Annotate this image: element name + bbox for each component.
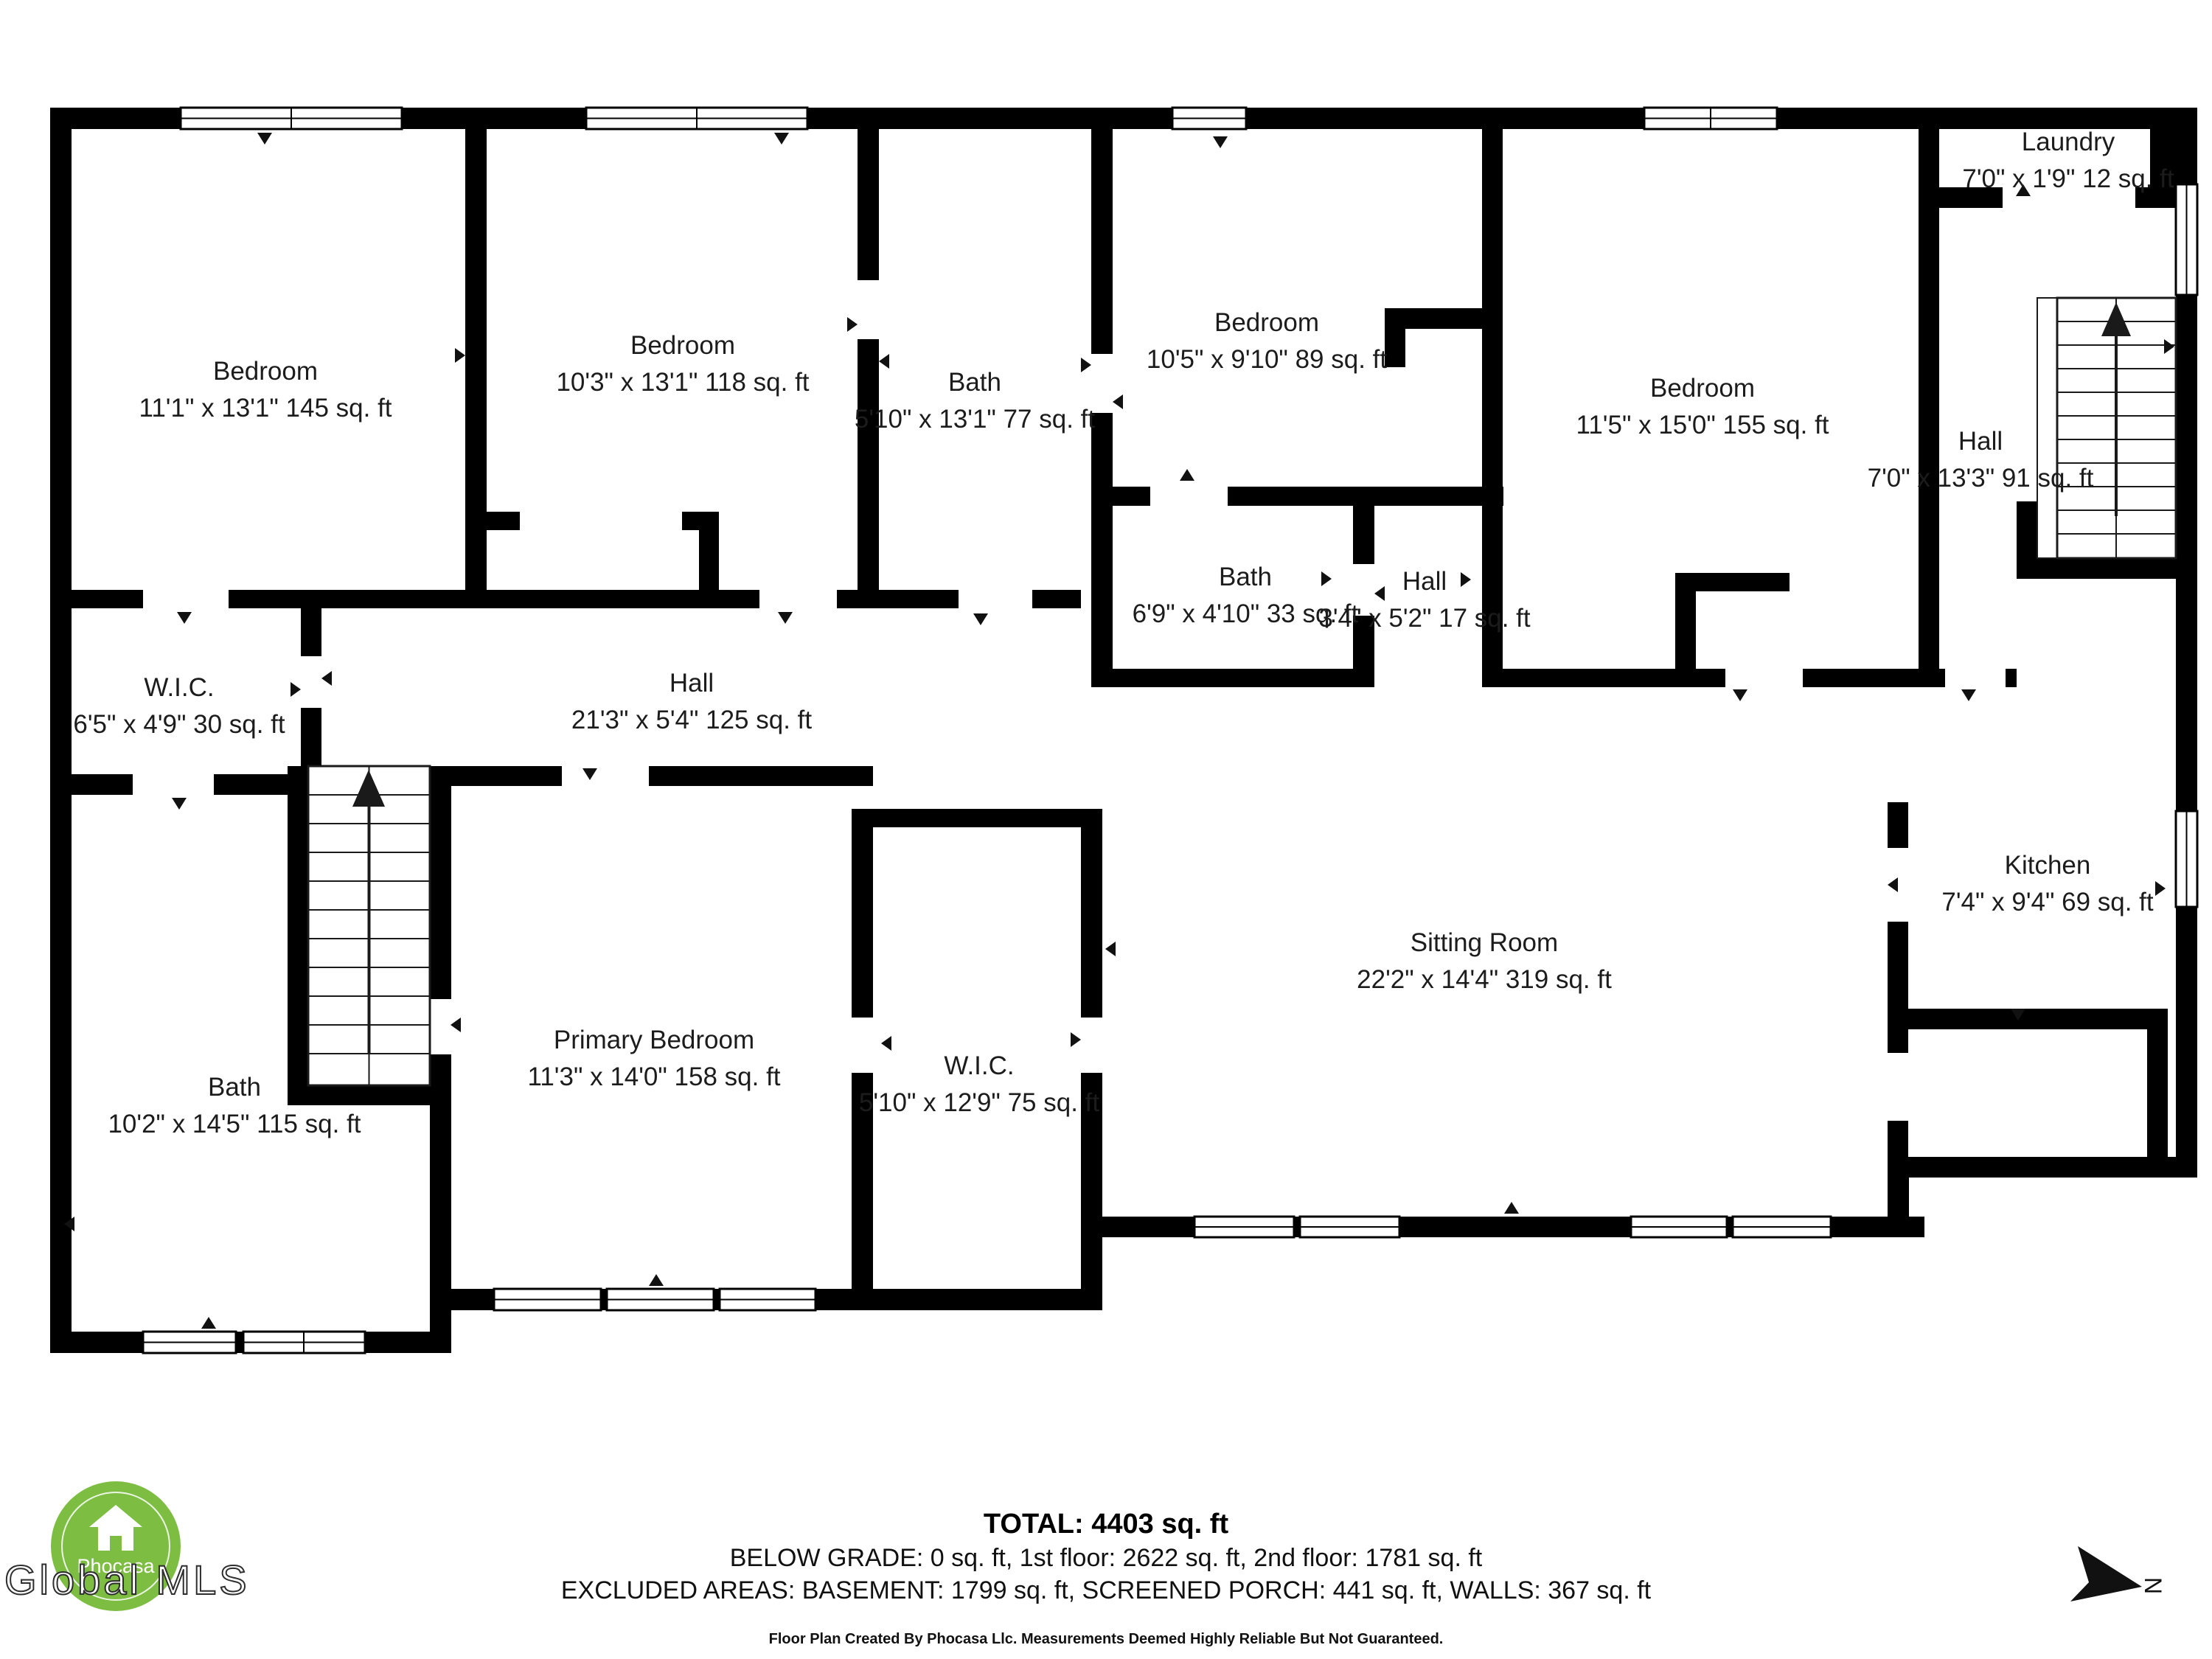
room-dims: 21'3" x 5'4" 125 sq. ft xyxy=(571,702,812,739)
room-dims: 6'5" x 4'9" 30 sq. ft xyxy=(73,706,285,743)
room-name: W.I.C. xyxy=(859,1048,1099,1085)
room-label-sitting-room: Sitting Room 22'2" x 14'4" 319 sq. ft xyxy=(1357,925,1612,998)
room-dims: 5'10" x 13'1" 77 sq. ft xyxy=(855,401,1095,438)
room-label-bath-lower: Bath 10'2" x 14'5" 115 sq. ft xyxy=(108,1069,361,1143)
disclaimer-text: Floor Plan Created By Phocasa Llc. Measu… xyxy=(0,1631,2212,1648)
room-name: W.I.C. xyxy=(73,669,285,706)
room-name: Bedroom xyxy=(139,353,392,390)
floor-areas-text: BELOW GRADE: 0 sq. ft, 1st floor: 2622 s… xyxy=(0,1544,2212,1573)
excluded-areas-text: EXCLUDED AREAS: BASEMENT: 1799 sq. ft, S… xyxy=(0,1576,2212,1605)
room-label-wic-2: W.I.C. 5'10" x 12'9" 75 sq. ft xyxy=(859,1048,1099,1121)
room-name: Bath xyxy=(108,1069,361,1106)
room-dims: 11'5" x 15'0" 155 sq. ft xyxy=(1576,407,1829,444)
room-name: Bath xyxy=(855,364,1095,401)
room-dims: 7'0" x 13'3" 91 sq. ft xyxy=(1868,460,2094,497)
room-dims: 7'0" x 1'9" 12 sq. ft xyxy=(1962,161,2174,198)
room-dims: 10'5" x 9'10" 89 sq. ft xyxy=(1147,341,1387,378)
room-dims: 7'4" x 9'4" 69 sq. ft xyxy=(1941,884,2153,921)
room-label-hall-center: Hall 21'3" x 5'4" 125 sq. ft xyxy=(571,665,812,739)
room-dims: 11'3" x 14'0" 158 sq. ft xyxy=(527,1059,780,1096)
room-dims: 10'2" x 14'5" 115 sq. ft xyxy=(108,1106,361,1143)
room-label-hall-small: Hall 3'4" x 5'2" 17 sq. ft xyxy=(1318,563,1530,637)
walls-layer xyxy=(50,108,2197,1353)
floor-plan-page: Bedroom 11'1" x 13'1" 145 sq. ft Bedroom… xyxy=(0,0,2212,1659)
room-name: Hall xyxy=(571,665,812,702)
stairs-left xyxy=(308,766,430,1085)
room-name: Hall xyxy=(1318,563,1530,600)
room-name: Bedroom xyxy=(556,327,809,364)
room-name: Bedroom xyxy=(1147,305,1387,341)
room-dims: 11'1" x 13'1" 145 sq. ft xyxy=(139,390,392,427)
room-dims: 5'10" x 12'9" 75 sq. ft xyxy=(859,1085,1099,1121)
room-name: Sitting Room xyxy=(1357,925,1612,961)
room-label-bath-top: Bath 5'10" x 13'1" 77 sq. ft xyxy=(855,364,1095,438)
room-label-bedroom-2: Bedroom 10'3" x 13'1" 118 sq. ft xyxy=(556,327,809,401)
floor-plan-drawing xyxy=(0,0,2212,1659)
room-name: Laundry xyxy=(1962,124,2174,161)
room-label-wic-1: W.I.C. 6'5" x 4'9" 30 sq. ft xyxy=(73,669,285,743)
room-dims: 22'2" x 14'4" 319 sq. ft xyxy=(1357,961,1612,998)
room-label-bedroom-1: Bedroom 11'1" x 13'1" 145 sq. ft xyxy=(139,353,392,427)
room-label-primary-bedroom: Primary Bedroom 11'3" x 14'0" 158 sq. ft xyxy=(527,1022,780,1096)
room-label-laundry: Laundry 7'0" x 1'9" 12 sq. ft xyxy=(1962,124,2174,198)
room-label-hall-right: Hall 7'0" x 13'3" 91 sq. ft xyxy=(1868,423,2094,497)
room-name: Kitchen xyxy=(1941,847,2153,884)
total-area-text: TOTAL: 4403 sq. ft xyxy=(0,1509,2212,1540)
room-name: Primary Bedroom xyxy=(527,1022,780,1059)
room-label-kitchen: Kitchen 7'4" x 9'4" 69 sq. ft xyxy=(1941,847,2153,921)
room-dims: 3'4" x 5'2" 17 sq. ft xyxy=(1318,600,1530,637)
door-markers-layer xyxy=(64,133,2174,1329)
room-label-bedroom-4: Bedroom 11'5" x 15'0" 155 sq. ft xyxy=(1576,370,1829,444)
room-name: Hall xyxy=(1868,423,2094,460)
room-name: Bedroom xyxy=(1576,370,1829,407)
room-label-bedroom-3: Bedroom 10'5" x 9'10" 89 sq. ft xyxy=(1147,305,1387,378)
room-dims: 10'3" x 13'1" 118 sq. ft xyxy=(556,364,809,401)
